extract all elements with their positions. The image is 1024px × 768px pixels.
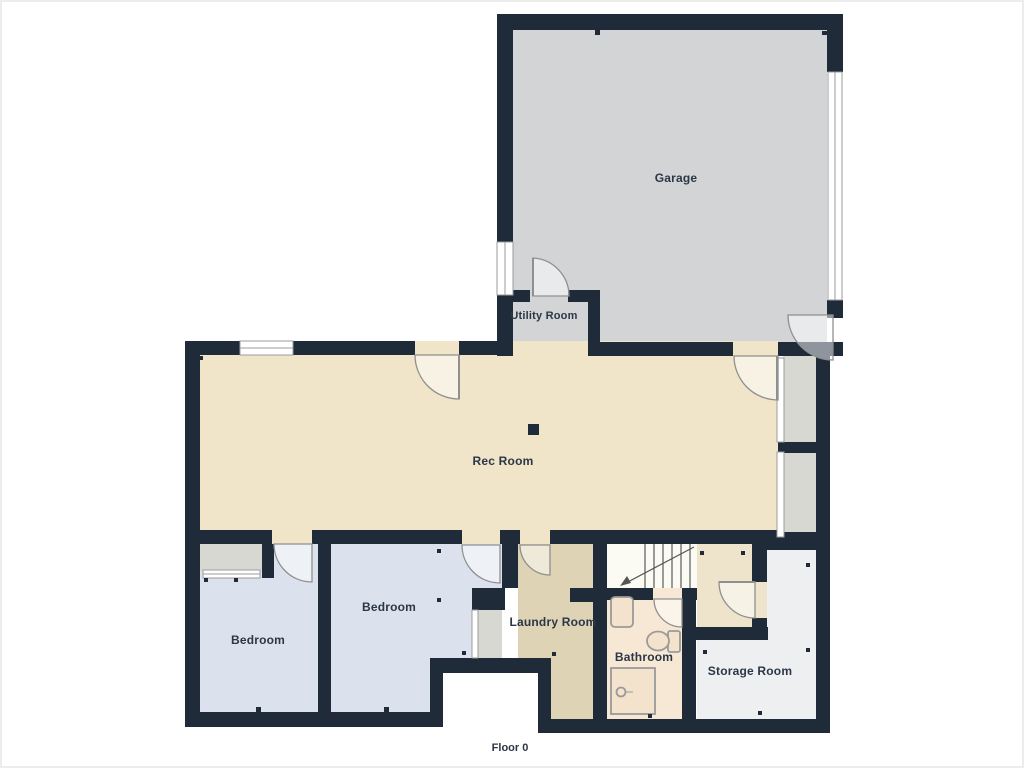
floor-plan-drawing <box>0 0 1024 768</box>
label-rec-room: Rec Room <box>473 454 534 468</box>
sliding-door-bedroom2-closet <box>472 610 478 658</box>
toilet-bowl <box>647 632 669 651</box>
closet-rec-south <box>783 452 816 537</box>
floor-indicator: Floor 0 <box>492 742 529 754</box>
support-column <box>528 424 539 435</box>
shower-drain <box>617 688 626 697</box>
stairwell <box>607 544 697 588</box>
room-utility <box>513 302 588 342</box>
label-utility-room: Utility Room <box>510 310 577 322</box>
sliding-door-rec-closet-south <box>777 452 784 537</box>
closet-bedroom-1 <box>200 544 262 571</box>
label-bedroom-2: Bedroom <box>362 600 416 614</box>
label-garage: Garage <box>655 171 698 185</box>
label-bathroom: Bathroom <box>615 650 673 664</box>
closet-rec-north <box>783 356 816 442</box>
sink <box>611 597 633 627</box>
closet-bedroom-2 <box>477 610 502 658</box>
label-bedroom-1: Bedroom <box>231 633 285 647</box>
room-laundry-lower <box>551 660 593 719</box>
floor-plan-page: Garage Utility Room Rec Room Bedroom Bed… <box>0 0 1024 768</box>
room-bedroom-2-lower <box>331 658 430 712</box>
label-storage-room: Storage Room <box>708 664 792 678</box>
room-storage <box>697 640 816 719</box>
room-rec <box>200 341 778 544</box>
label-laundry-room: Laundry Room <box>509 615 596 629</box>
